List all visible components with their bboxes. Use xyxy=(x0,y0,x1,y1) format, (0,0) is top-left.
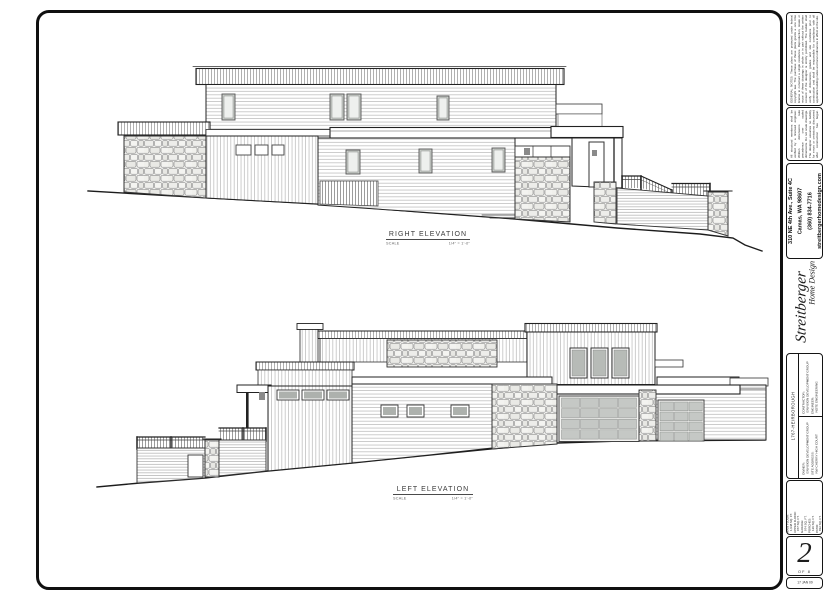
entry-clerestory xyxy=(515,146,570,157)
stone-pier xyxy=(708,192,728,236)
area-row: MAIN FLOOR:1,948 SQ. FT. xyxy=(786,483,793,533)
address-line-1: 310 NE 4th Ave., Suite 4C xyxy=(785,165,795,257)
entry-popup xyxy=(556,104,602,128)
owner-cell: OWNER: ENVISION DEVELOPMENT GROUP SITE A… xyxy=(801,419,819,475)
project-id: 1767-HEIRBOROUGH xyxy=(790,356,795,476)
stone-stair-wall xyxy=(594,182,616,224)
vent-skirt xyxy=(320,181,378,206)
firm-address: 310 NE 4th Ave., Suite 4C Camas, WA 9860… xyxy=(785,165,824,257)
stone-entry-column xyxy=(515,157,570,222)
contractor-label: CONTRACTOR: xyxy=(801,356,805,414)
sheet-number: 2 xyxy=(787,537,822,570)
deck-skirt-mid xyxy=(219,440,266,476)
upper-roof-band xyxy=(196,69,564,85)
stone-clerestory-band xyxy=(387,340,497,367)
engineer-value: NOTE ENGINEERING xyxy=(815,356,819,414)
sheet-count: OF 8 xyxy=(795,570,814,574)
owner-label: OWNER: xyxy=(801,419,805,475)
transom-windows xyxy=(277,390,349,400)
scale-label: SCALE xyxy=(386,241,400,246)
disclaimer-text-2: All structural members shall be verified… xyxy=(790,110,819,158)
upper-roof-band xyxy=(525,324,657,333)
left-elevation-drawing xyxy=(97,324,768,488)
titleblock-disclaimer-box-1: GENERAL NOTES: These plans are protected… xyxy=(786,12,823,106)
titleblock-areas-box: MAIN FLOOR:1,948 SQ. FT. UPPER FLOOR:977… xyxy=(786,480,823,535)
site-address-value: NW CHERRY HIGH COURT xyxy=(815,419,819,475)
right-elevation-label: RIGHT ELEVATION SCALE 1/4" = 1'-0" xyxy=(386,231,470,250)
titleblock-sheet-box: 2 OF 8 xyxy=(786,536,823,576)
area-row: GARAGE:974 SQ. FT. xyxy=(801,483,808,533)
stone-deck-column xyxy=(205,440,219,477)
stone-wall-left xyxy=(124,136,206,198)
entry-canopy xyxy=(551,127,623,138)
left-canopy xyxy=(118,122,210,135)
area-table: MAIN FLOOR:1,948 SQ. FT. UPPER FLOOR:977… xyxy=(786,483,823,533)
right-elevation-drawing xyxy=(88,67,762,252)
right-elevation-title: RIGHT ELEVATION xyxy=(386,231,470,240)
contractor-value: ENVISION DEVELOPMENT GROUP xyxy=(805,356,809,414)
skirt-door xyxy=(188,455,203,477)
scale-value: 1/4" = 1'-0" xyxy=(452,496,473,501)
upper-windows xyxy=(570,348,629,378)
firm-logo: Streitberger Home Design xyxy=(783,262,827,352)
scale-value: 1/4" = 1'-0" xyxy=(449,241,470,246)
site-address-label: SITE ADDRESS: xyxy=(811,419,815,475)
left-elevation-title: LEFT ELEVATION xyxy=(393,486,473,495)
stone-strip xyxy=(639,390,656,441)
upper-wall xyxy=(206,85,556,130)
titleblock-address-box: 310 NE 4th Ave., Suite 4C Camas, WA 9860… xyxy=(786,163,823,259)
titleblock-date-box: 17 JAN 09 xyxy=(786,577,823,589)
disclaimer-text-1: GENERAL NOTES: These plans are protected… xyxy=(790,15,819,103)
address-line-2: Camas, WA 98607 xyxy=(795,165,805,257)
mid-roof-band xyxy=(318,331,528,339)
stone-garage-pier xyxy=(492,384,557,449)
single-garage-door xyxy=(658,400,704,441)
upper-step-wall xyxy=(300,330,318,363)
address-web: streitbergerhomedesign.com xyxy=(814,165,824,257)
area-row: PORCHES:129 SQ. FT. xyxy=(808,483,815,533)
elevations-line-art xyxy=(0,0,840,600)
area-row: UPPER FLOOR:977 SQ. FT. xyxy=(794,483,801,533)
drawing-sheet: RIGHT ELEVATION SCALE 1/4" = 1'-0" LEFT … xyxy=(0,0,840,600)
sheet-date: 17 JAN 09 xyxy=(797,581,812,584)
scale-label: SCALE xyxy=(393,496,407,501)
titleblock-disclaimer-box-2: All structural members shall be verified… xyxy=(786,107,823,161)
address-phone: (360) 834-7716 xyxy=(805,165,815,257)
contractor-cell: CONTRACTOR: ENVISION DEVELOPMENT GROUP E… xyxy=(801,356,819,414)
firm-logo-name: Streitberger xyxy=(794,260,811,354)
left-elevation-label: LEFT ELEVATION SCALE 1/4" = 1'-0" xyxy=(393,486,473,505)
double-garage-door xyxy=(559,396,639,442)
entry-door xyxy=(589,142,604,187)
popup-roof xyxy=(256,362,354,370)
area-row: PATIO:832 SQ. FT. xyxy=(815,483,822,533)
clerestory-strip-windows xyxy=(236,145,284,155)
titleblock-project-box: 1767-HEIRBOROUGH CONTRACTOR: ENVISION DE… xyxy=(786,353,823,479)
engineer-label: ENGINEER: xyxy=(811,356,815,414)
owner-value: ENVISION DEVELOPMENT GROUP xyxy=(805,419,809,475)
porch-canopy xyxy=(237,385,271,393)
